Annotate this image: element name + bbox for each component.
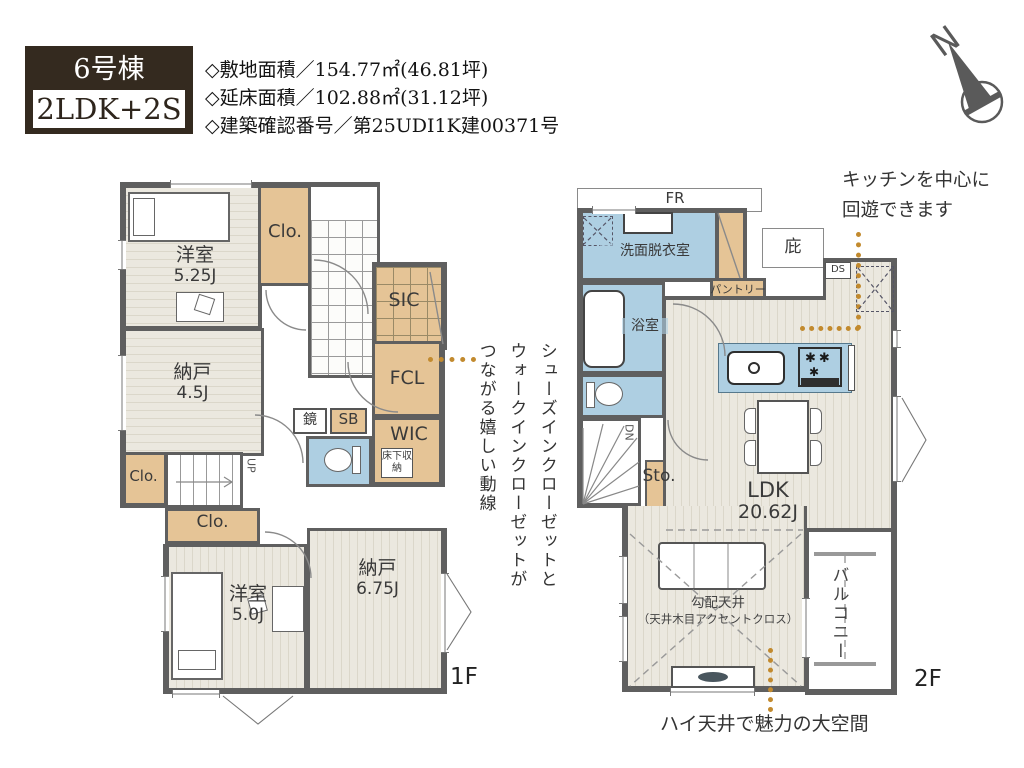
sloped-ceiling-note: （天井木目アクセントクロス） <box>625 613 811 626</box>
stove-front-bar <box>801 378 839 385</box>
stairs-1f <box>165 452 243 508</box>
stairs-down-label: DN <box>622 424 635 441</box>
room-sto-label: Sto. <box>634 467 684 487</box>
dining-chair <box>744 440 756 466</box>
balcony-rail-bottom <box>814 662 876 666</box>
window <box>893 330 901 348</box>
balcony-door-window <box>802 598 810 658</box>
dotted-path-closet <box>428 357 476 362</box>
compass-north-label: N <box>924 18 968 65</box>
room-storage-45-size: 4.5J <box>145 384 240 404</box>
dining-chair <box>810 440 822 466</box>
window <box>170 180 252 188</box>
room-wic-label: WIC <box>374 424 444 446</box>
title-block: 6号棟 2LDK+2S <box>25 46 193 134</box>
window <box>118 355 126 431</box>
toilet-2-tank <box>586 382 595 408</box>
window <box>172 690 220 698</box>
room-bathroom-label: 浴室 <box>622 318 668 334</box>
room-storage-675-size: 6.75J <box>330 580 425 600</box>
room-ldk-size: 20.62J <box>722 502 814 524</box>
fridge-space <box>856 266 894 312</box>
sb-label: SB <box>330 411 367 428</box>
dotted-path-kitchen-vertical <box>856 232 861 330</box>
toilet-bowl <box>324 448 352 472</box>
room-bedroom-525-size: 5.25J <box>150 267 240 287</box>
unit-label: 6号棟 <box>25 54 193 85</box>
floor2-label: 2F <box>914 666 954 692</box>
plan-type-box: 2LDK+2S <box>33 90 185 128</box>
room-pantry-label: パントリー <box>708 284 768 297</box>
floorplan-page: 6号棟 2LDK+2S ◇敷地面積／154.77㎡(46.81坪) ◇延床面積／… <box>0 0 1024 768</box>
spec-floor-area: ◇延床面積／102.88㎡(31.12坪) <box>205 84 625 112</box>
room-storage-675 <box>307 528 447 694</box>
spec-list: ◇敷地面積／154.77㎡(46.81坪) ◇延床面積／102.88㎡(31.1… <box>205 56 625 140</box>
washroom-side-closet <box>715 208 747 282</box>
room-fcl-label: FCL <box>372 368 442 390</box>
kitchen-annotation-line-2: 回遊できます <box>842 196 1022 226</box>
room-bedroom-525-name: 洋室 <box>150 245 240 267</box>
sink-faucet <box>748 362 760 374</box>
vanity <box>623 212 673 234</box>
room-storage-675-name: 納戸 <box>330 558 425 580</box>
dotted-path-kitchen-horizontal <box>800 326 860 331</box>
entrance-tiles <box>311 220 377 375</box>
spec-site-area: ◇敷地面積／154.77㎡(46.81坪) <box>205 56 625 84</box>
counter-end-panel <box>848 345 855 391</box>
window <box>441 573 449 653</box>
bathtub <box>583 290 625 368</box>
spec-confirmation-number: ◇建築確認番号／第25UDI1K建00371号 <box>205 112 625 140</box>
room-closet-mid-label: Clo. <box>165 513 260 533</box>
room-bedroom-50-name: 洋室 <box>208 584 288 606</box>
fr-label: FR <box>655 190 695 207</box>
closet-flow-line-1: シューズインクローゼットと <box>531 342 562 642</box>
compass-icon: N <box>910 14 1020 132</box>
washing-machine <box>583 216 613 246</box>
bed-2-pillow <box>178 650 216 670</box>
window <box>670 688 755 696</box>
window <box>619 556 627 604</box>
closet-flow-line-3: つながる嬉しい動線 <box>470 342 501 642</box>
dining-chair <box>810 408 822 434</box>
room-sic-label: SIC <box>372 290 436 312</box>
ds-label: DS <box>825 264 851 276</box>
tv-screen <box>698 672 728 682</box>
room-closet-left-label: Clo. <box>120 468 167 485</box>
closet-flow-annotation: シューズインクローゼットと ウォークインクローゼットが つながる嬉しい動線 <box>470 342 562 642</box>
balcony-rail-top <box>814 552 876 556</box>
closet-flow-line-2: ウォークインクローゼットが <box>501 342 532 642</box>
window <box>592 206 636 214</box>
bed-pillow <box>133 198 155 236</box>
window <box>161 576 169 632</box>
sofa <box>658 542 766 590</box>
floor1-label: 1F <box>450 664 490 690</box>
toilet-2-bowl <box>595 382 623 406</box>
kitchen-annotation-line-1: キッチンを中心に <box>842 166 1022 196</box>
room-washroom-label: 洗面脱衣室 <box>600 243 710 259</box>
plan-type-label: 2LDK+2S <box>33 93 185 126</box>
dotted-path-high-ceiling <box>768 648 773 712</box>
dining-table <box>757 400 809 474</box>
window <box>118 240 126 270</box>
room-ldk-name: LDK <box>722 478 814 502</box>
stairs-up-label: UP <box>244 458 257 473</box>
toilet-tank <box>352 446 361 474</box>
room-closet-top-label: Clo. <box>256 222 314 243</box>
kitchen-annotation: キッチンを中心に 回遊できます <box>842 166 1022 225</box>
underfloor-storage-label: 床下収納 <box>381 451 413 474</box>
canopy-label: 庇 <box>762 238 824 258</box>
room-storage-45-name: 納戸 <box>145 362 240 384</box>
high-ceiling-annotation: ハイ天井で魅力の大空間 <box>660 714 910 736</box>
room-bedroom-50-size: 5.0J <box>208 606 288 626</box>
sloped-ceiling-label: 勾配天井 <box>648 596 788 612</box>
balcony-label: バルコニー <box>828 566 848 661</box>
mirror-label: 鏡 <box>293 412 327 428</box>
window <box>893 396 901 482</box>
dining-chair <box>744 408 756 434</box>
